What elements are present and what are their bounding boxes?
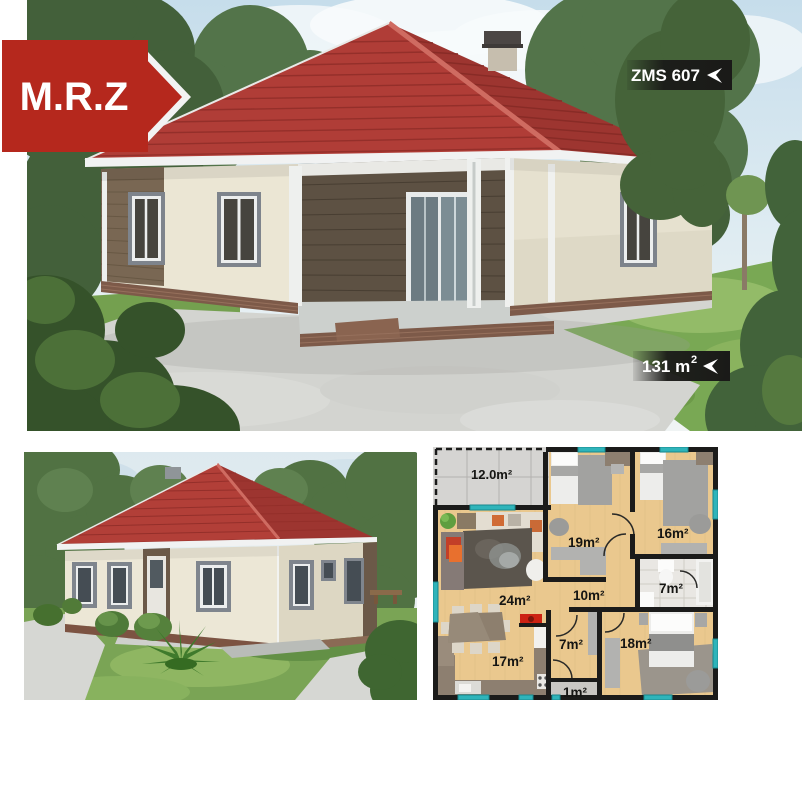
svg-text:16m²: 16m²	[657, 526, 689, 541]
svg-text:10m²: 10m²	[573, 588, 605, 603]
svg-text:12.0m²: 12.0m²	[471, 467, 513, 482]
svg-text:17m²: 17m²	[492, 654, 524, 669]
svg-text:7m²: 7m²	[659, 581, 684, 596]
svg-text:ZMS 607: ZMS 607	[631, 66, 700, 85]
svg-text:19m²: 19m²	[568, 535, 600, 550]
svg-text:2: 2	[691, 354, 697, 366]
svg-text:18m²: 18m²	[620, 636, 652, 651]
svg-text:1m²: 1m²	[563, 685, 588, 700]
svg-text:24m²: 24m²	[499, 593, 531, 608]
svg-text:7m²: 7m²	[559, 637, 584, 652]
svg-text:131 m: 131 m	[642, 357, 690, 376]
svg-text:M.R.Z: M.R.Z	[20, 75, 129, 119]
